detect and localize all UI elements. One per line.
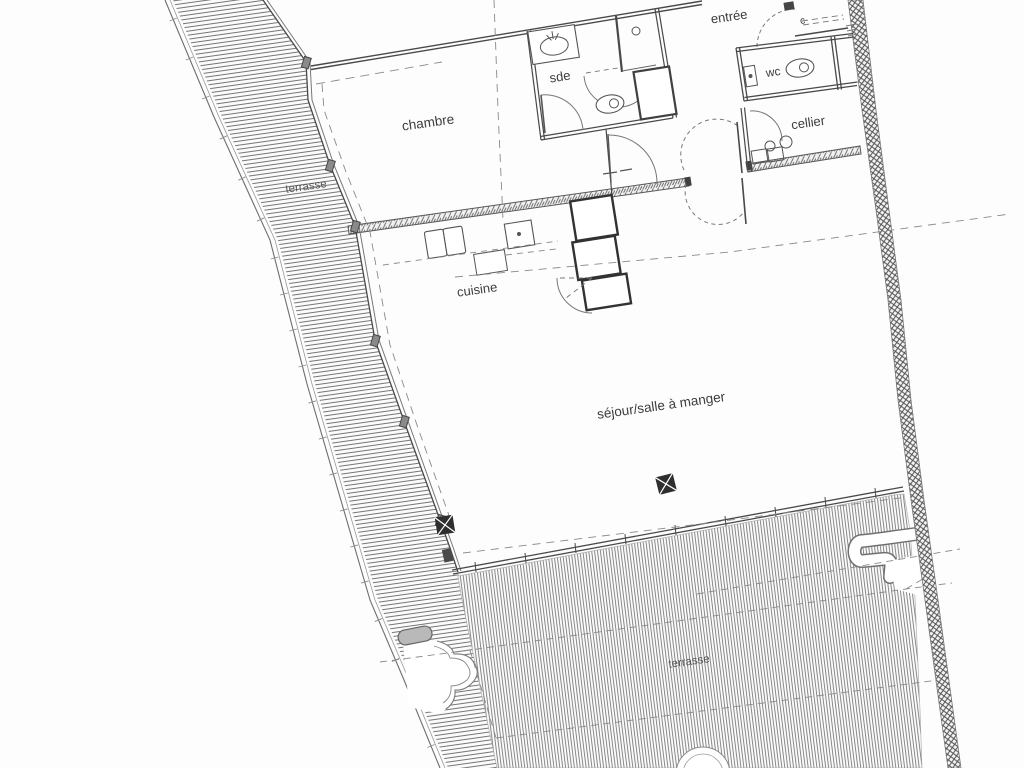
svg-text:wc: wc <box>764 64 781 80</box>
